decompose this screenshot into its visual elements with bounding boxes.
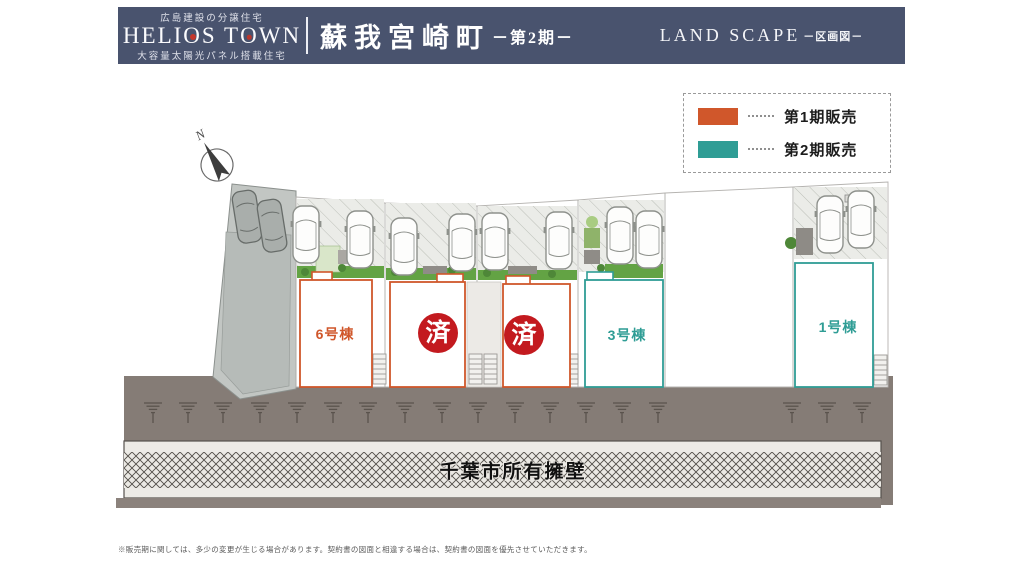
phase1-swatch xyxy=(698,108,738,125)
lot-label-6: 6号棟 xyxy=(316,324,355,344)
page-subtitle: LAND SCAPE －区画図－ xyxy=(626,7,897,64)
page: 広島建設の分譲住宅 HELIOS TOWN 大容量太陽光パネル搭載住宅 蘇我宮崎… xyxy=(0,0,1024,564)
neighbour-parcel xyxy=(213,184,296,399)
retaining-wall-label: 千葉市所有擁壁 xyxy=(439,457,586,484)
brand-part: WN xyxy=(259,23,301,48)
header-banner: 広島建設の分譲住宅 HELIOS TOWN 大容量太陽光パネル搭載住宅 蘇我宮崎… xyxy=(118,7,905,64)
site-area xyxy=(291,182,888,387)
lot-label-1: 1号棟 xyxy=(819,317,858,337)
sold-badge: 済 xyxy=(418,313,458,353)
brand-tagline-bottom: 大容量太陽光パネル搭載住宅 xyxy=(137,48,287,62)
page-title: 蘇我宮崎町 －第2期－ xyxy=(320,7,574,64)
legend-leader-dots xyxy=(748,115,774,117)
footnote: ※販売期に関しては、多少の変更が生じる場合があります。契約書の図面と相違する場合… xyxy=(118,544,592,555)
brand-tagline-top: 広島建設の分譲住宅 xyxy=(160,10,264,24)
project-phase: －第2期－ xyxy=(492,24,574,48)
sun-o-icon: O xyxy=(240,24,259,48)
banner-divider xyxy=(306,17,308,54)
brand-part: HELI xyxy=(123,23,183,48)
brand-logo: 広島建設の分譲住宅 HELIOS TOWN 大容量太陽光パネル搭載住宅 xyxy=(118,7,306,64)
project-title: 蘇我宮崎町 xyxy=(320,16,490,55)
legend-row-phase1: 第1期販売 xyxy=(684,107,890,125)
brand-name: HELIOS TOWN xyxy=(123,24,301,48)
phase2-swatch xyxy=(698,141,738,158)
legend: 第1期販売 第2期販売 xyxy=(683,93,891,173)
legend-row-phase2: 第2期販売 xyxy=(684,140,890,158)
sold-badge: 済 xyxy=(504,315,544,355)
sun-o-icon: O xyxy=(183,24,202,48)
brand-part: S T xyxy=(202,23,240,48)
legend-leader-dots xyxy=(748,148,774,150)
subtitle-ja: －区画図－ xyxy=(803,28,863,44)
north-arrow-icon xyxy=(190,134,239,186)
legend-label: 第1期販売 xyxy=(784,106,857,127)
legend-label: 第2期販売 xyxy=(784,139,857,160)
lot-label-3: 3号棟 xyxy=(608,325,647,345)
subtitle-en: LAND SCAPE xyxy=(660,25,801,46)
